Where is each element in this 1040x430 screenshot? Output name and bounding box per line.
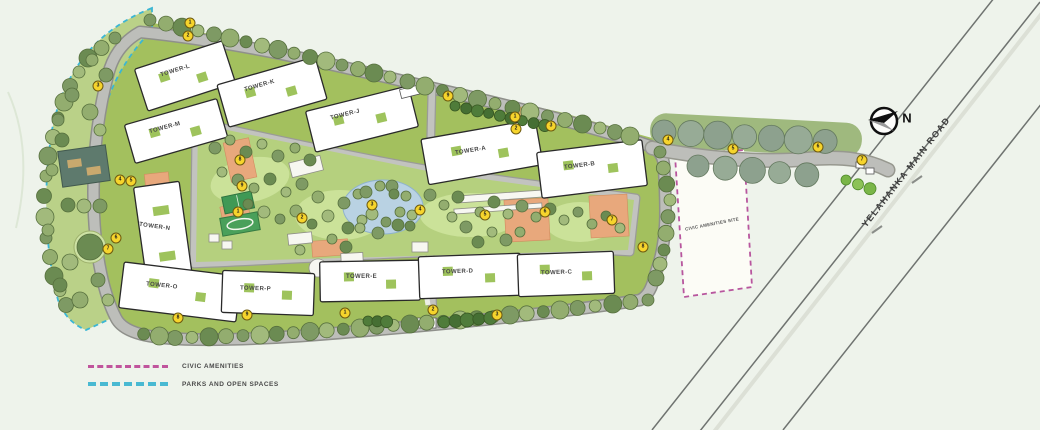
amenity-marker: 7 bbox=[607, 215, 618, 226]
amenity-marker: 4 bbox=[663, 135, 674, 146]
amenity-marker: 1 bbox=[233, 207, 244, 218]
amenity-marker: 2 bbox=[297, 213, 308, 224]
amenity-marker: 6 bbox=[111, 233, 122, 244]
amenity-marker: 5 bbox=[728, 144, 739, 155]
building-tower-e bbox=[320, 260, 421, 302]
amenity-marker: 3 bbox=[367, 200, 378, 211]
amenity-marker: 1 bbox=[340, 308, 351, 319]
building-tower-p bbox=[221, 270, 314, 315]
amenity-marker: 6 bbox=[813, 142, 824, 153]
parks-open-spaces-swatch-icon bbox=[88, 382, 168, 386]
amenity-marker: 4 bbox=[115, 175, 126, 186]
tower-label-d: TOWER-D bbox=[442, 268, 474, 275]
amenity-marker: 9 bbox=[443, 91, 454, 102]
compass-north-label: N bbox=[902, 111, 911, 126]
tower-label-e: TOWER-E bbox=[346, 274, 377, 280]
amenity-marker: 9 bbox=[237, 181, 248, 192]
amenity-marker: 3 bbox=[546, 121, 557, 132]
tower-label-p: TOWER-P bbox=[240, 285, 271, 292]
amenity-marker: 8 bbox=[235, 155, 246, 166]
legend-label: PARKS AND OPEN SPACES bbox=[182, 381, 279, 388]
amenity-marker: 7 bbox=[103, 244, 114, 255]
civic-amenities-swatch-icon bbox=[88, 365, 168, 368]
legend: CIVIC AMENITIES PARKS AND OPEN SPACES bbox=[88, 357, 279, 393]
amenity-marker: 3 bbox=[492, 310, 503, 321]
building-tower-d bbox=[418, 253, 521, 299]
amenity-marker: 9 bbox=[242, 310, 253, 321]
amenity-marker: 3 bbox=[93, 81, 104, 92]
site-plan: TOWER-L TOWER-K TOWER-J TOWER-A TOWER-B … bbox=[0, 0, 1040, 430]
amenity-marker: 2 bbox=[428, 305, 439, 316]
legend-row-parks: PARKS AND OPEN SPACES bbox=[88, 375, 279, 393]
tower-label-c: TOWER-C bbox=[541, 269, 573, 276]
amenity-marker: 1 bbox=[510, 112, 521, 123]
amenity-marker: 8 bbox=[638, 242, 649, 253]
legend-row-civic: CIVIC AMENITIES bbox=[88, 357, 279, 375]
amenity-marker: 5 bbox=[126, 176, 137, 187]
amenity-marker: 6 bbox=[540, 207, 551, 218]
amenity-marker: 7 bbox=[857, 155, 868, 166]
amenity-marker: 8 bbox=[173, 313, 184, 324]
amenity-marker: 2 bbox=[511, 124, 522, 135]
legend-label: CIVIC AMENITIES bbox=[182, 363, 244, 370]
amenity-marker: 1 bbox=[185, 18, 196, 29]
multipurpose-court bbox=[58, 145, 111, 187]
amenity-marker: 5 bbox=[480, 210, 491, 221]
amenity-marker: 2 bbox=[183, 31, 194, 42]
amenity-marker: 4 bbox=[415, 205, 426, 216]
